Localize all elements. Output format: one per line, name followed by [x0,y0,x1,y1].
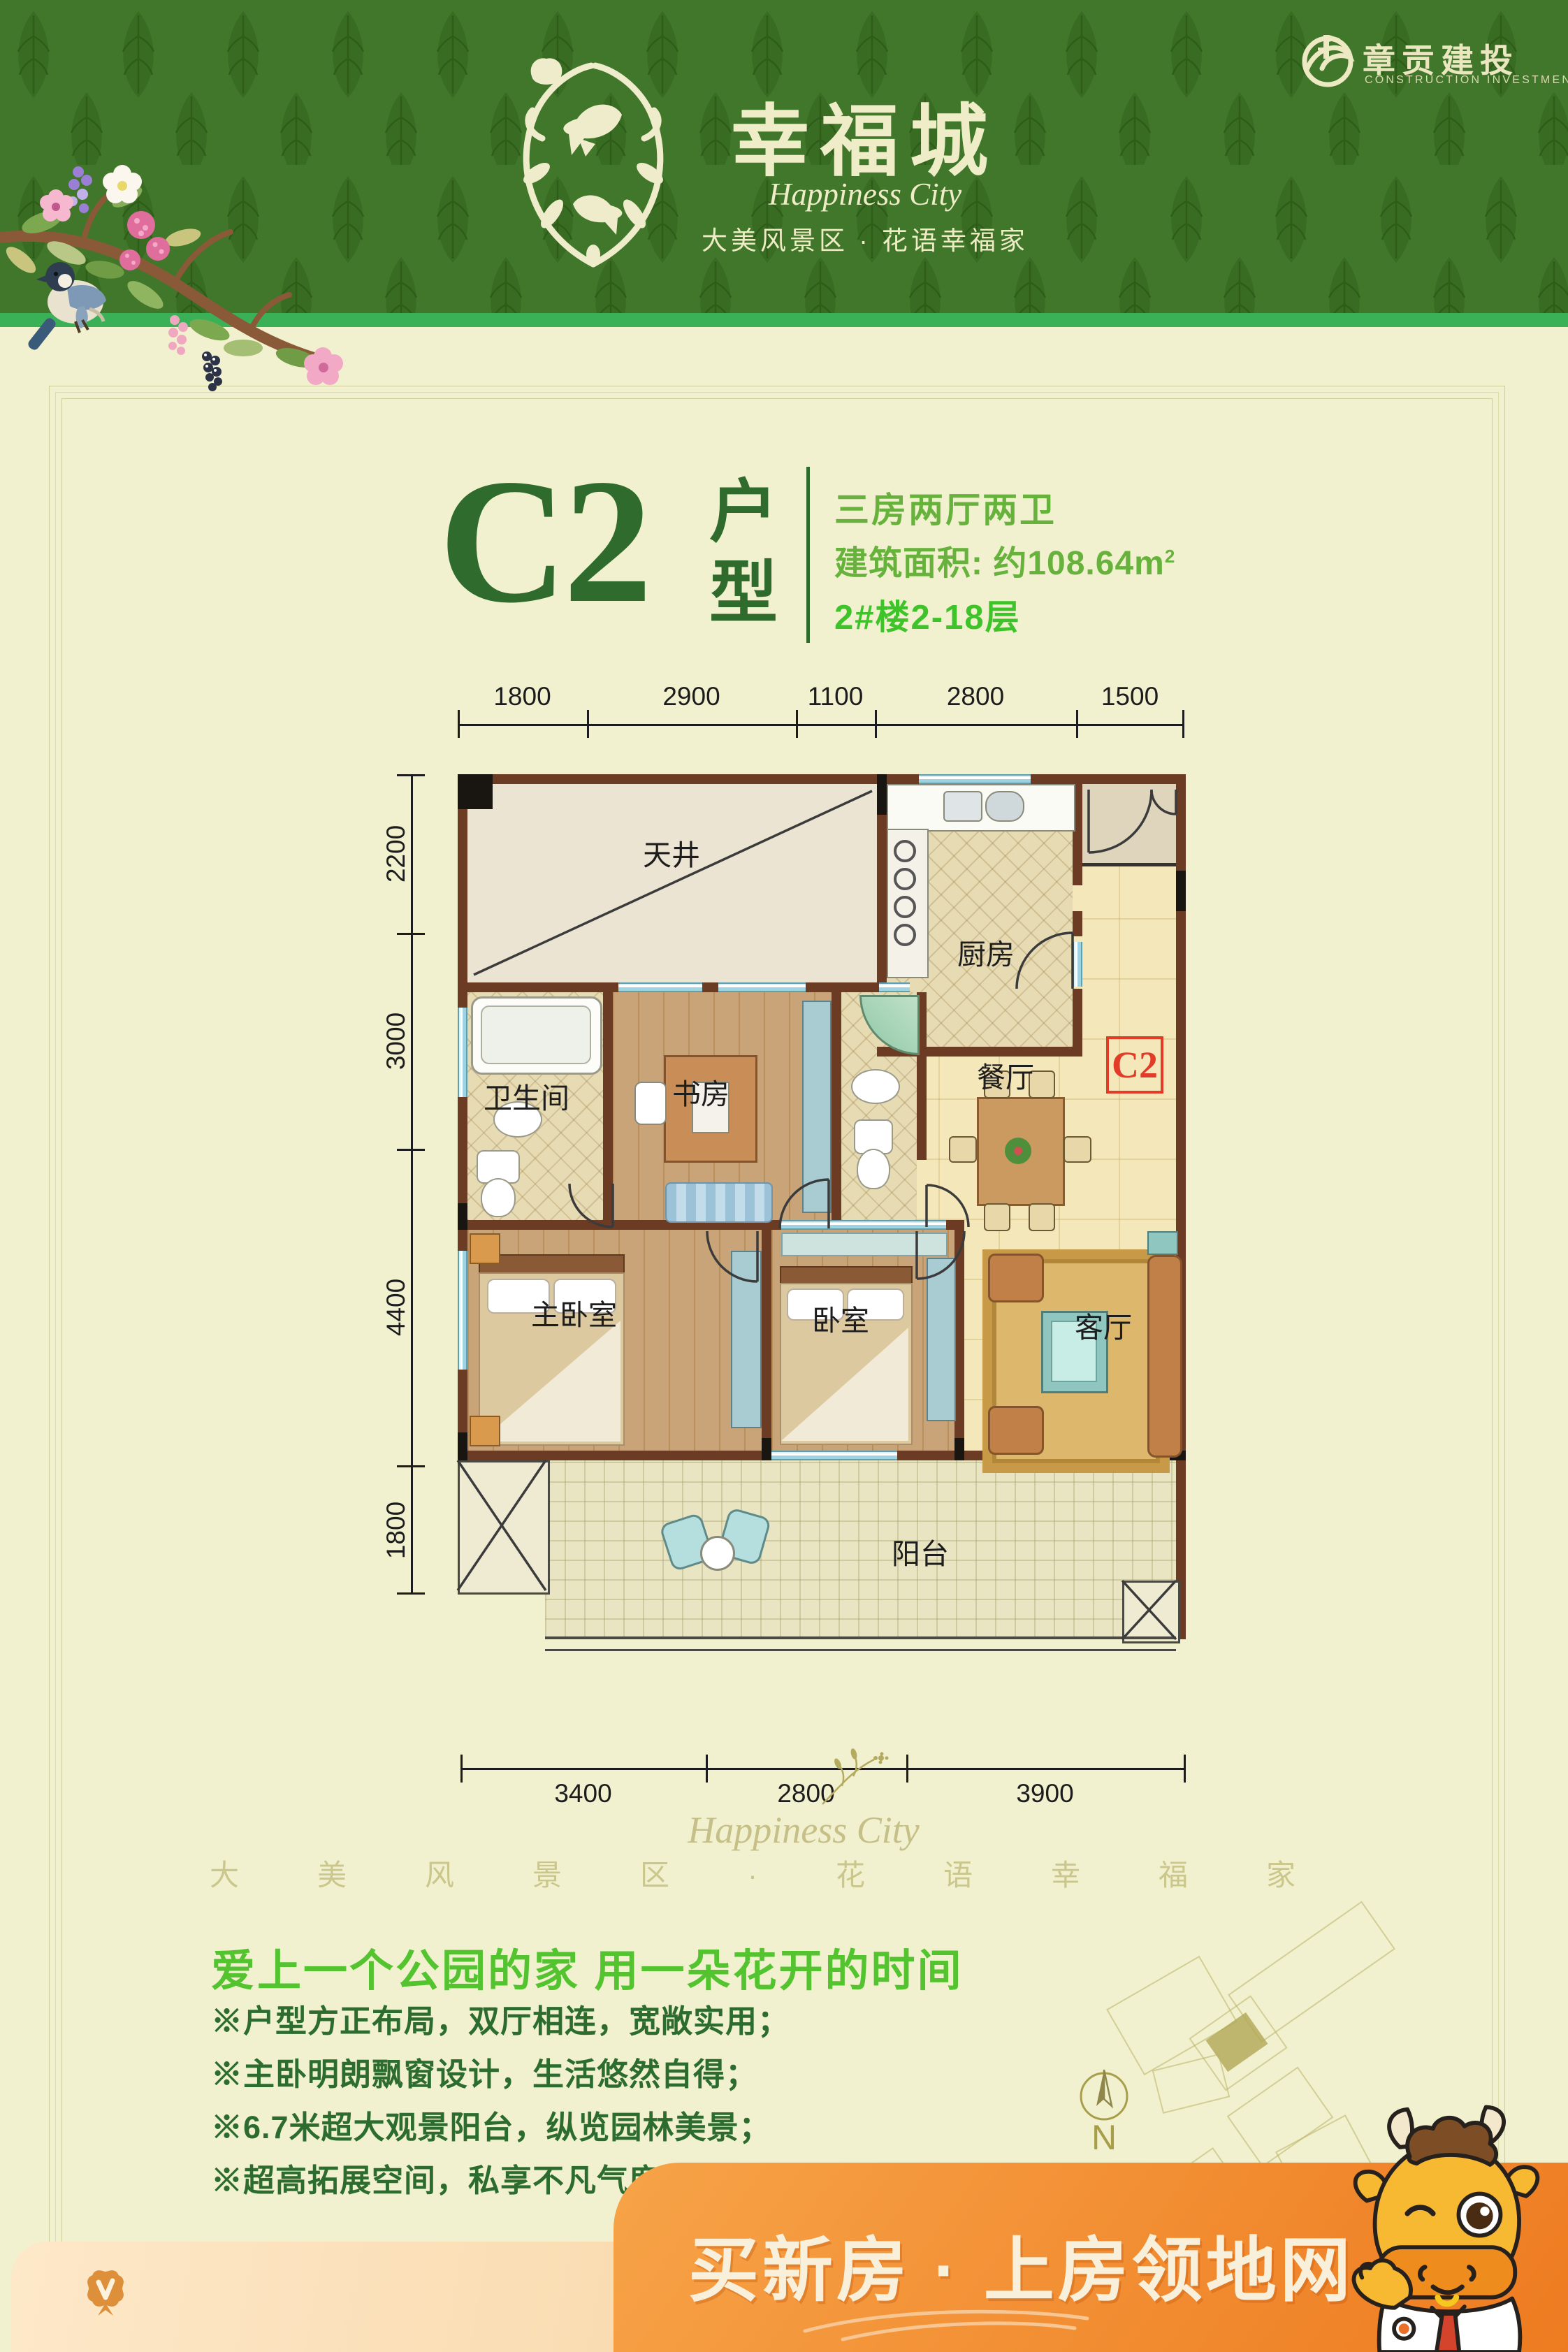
white-flower [103,165,142,203]
title-divider [806,467,810,643]
features-heading: 爱上一个公园的家 用一朵花开的时间 [211,1936,964,1999]
room-label-bathroom: 卫生间 [484,1075,569,1117]
bird-floral-crest-icon [493,55,693,273]
room-label-master-bedroom: 主卧室 [531,1291,617,1333]
unit-code-title: C2 [439,453,648,631]
room-label-bedroom: 卧室 [812,1297,869,1339]
developer-logo-icon [1297,27,1358,91]
flower-branch-illustration [0,28,405,433]
developer-subtitle: CONSTRUCTION INVESTMENT [1365,74,1568,87]
watermark-spaced-tagline: 大美风景区·花语幸福家 [210,1852,1374,1894]
room-label-study: 书房 [672,1070,729,1112]
certified-badge-icon [84,2267,127,2318]
compass-north-label: N [1080,2117,1128,2158]
unit-floors: 2#楼2-18层 [834,590,1021,639]
unit-area: 建筑面积: 约108.64m2 [834,535,1175,584]
compass-icon [1078,2067,1130,2121]
feature-item-1: ※户型方正布局，双厅相连，宽敞实用； [211,1996,790,2041]
room-label-kitchen: 厨房 [957,931,1015,973]
feature-item-3: ※6.7米超大观景阳台，纵览园林美景； [211,2102,771,2147]
watermark-script: Happiness City [629,1808,978,1852]
underline-swoosh-icon [797,2303,1097,2346]
unit-tag-box: C2 [1106,1036,1163,1094]
room-label-living-room: 客厅 [1075,1304,1132,1346]
unit-summary: 三房两厅两卫 [834,482,1057,532]
bird-icon [27,262,106,351]
room-label-balcony: 阳台 [892,1530,949,1572]
feature-item-2: ※主卧明朗飘窗设计，生活悠然自得； [211,2049,757,2094]
project-tagline: 大美风景区 · 花语幸福家 [695,219,1035,257]
poster-page: 幸福城 Happiness City 大美风景区 · 花语幸福家 章贡建投 CO… [0,0,1568,2352]
doors-and-lines-overlay [391,664,1300,1852]
unit-type-label: 户 型 [702,472,785,634]
watermark-sprig-icon [814,1745,898,1807]
promo-slogan: 买新房 · 上房领地网 [688,2214,1345,2316]
cow-mascot-illustration [1331,2102,1562,2352]
project-logo-subtitle: Happiness City [704,176,1026,212]
room-label-light-well: 天井 [643,832,700,873]
feature-item-4: ※超高拓展空间，私享不凡气度。 [211,2155,693,2200]
project-logo-title: 幸福城 [704,78,1026,191]
room-label-dining: 餐厅 [977,1054,1034,1096]
floor-plan: 1800 2900 1100 2800 1500 2200 3000 4400 … [391,664,1300,1852]
